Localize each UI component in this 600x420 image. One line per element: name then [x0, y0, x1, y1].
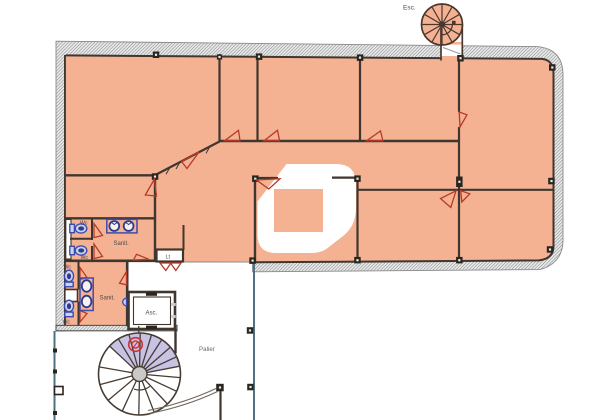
svg-text:Esc.: Esc. [403, 5, 416, 12]
svg-text:Lt: Lt [166, 255, 171, 261]
svg-text:Sanit.: Sanit. [100, 296, 116, 302]
svg-text:Wc: Wc [64, 265, 72, 271]
svg-text:Wc: Wc [63, 320, 71, 326]
svg-text:Asc.: Asc. [146, 311, 158, 317]
svg-text:Palier: Palier [199, 346, 215, 353]
svg-text:Wc: Wc [81, 255, 89, 261]
svg-text:Wc: Wc [80, 221, 88, 227]
svg-text:Sanit.: Sanit. [114, 241, 130, 247]
